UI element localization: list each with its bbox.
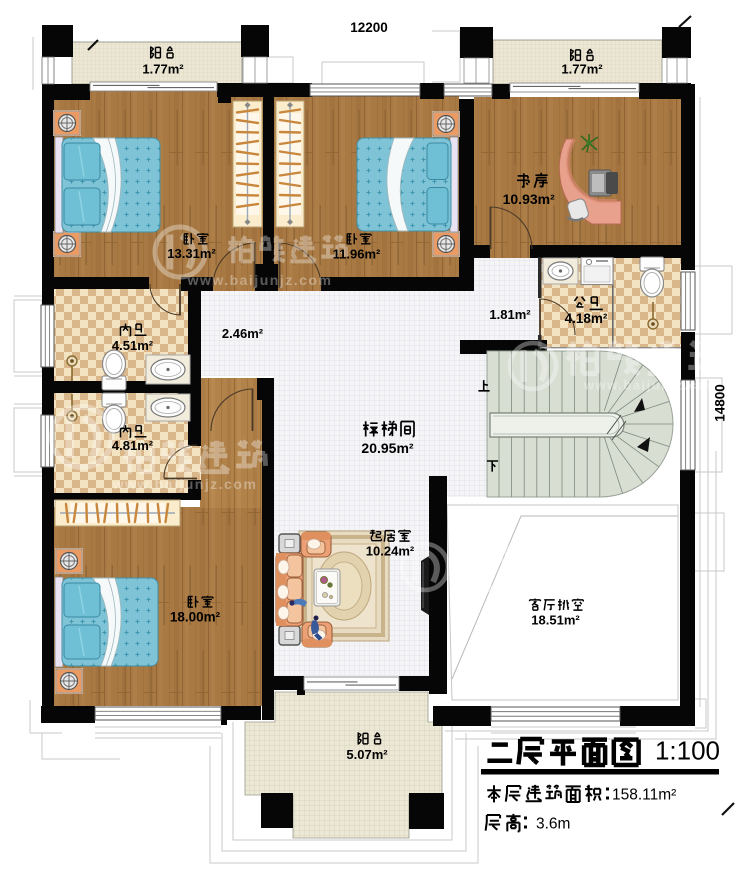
svg-text:13.31m²: 13.31m² xyxy=(167,246,216,261)
svg-text:4.18m²: 4.18m² xyxy=(565,311,608,326)
svg-text:5.07m²: 5.07m² xyxy=(346,747,388,762)
svg-text:1.81m²: 1.81m² xyxy=(489,307,531,322)
svg-text:2.46m²: 2.46m² xyxy=(222,326,264,341)
svg-text:1.77m²: 1.77m² xyxy=(142,62,184,77)
svg-text:14800: 14800 xyxy=(713,384,728,422)
svg-text:1.77m²: 1.77m² xyxy=(561,62,603,77)
svg-text:4.81m²: 4.81m² xyxy=(112,438,154,453)
svg-text:10.93m²: 10.93m² xyxy=(503,191,555,207)
svg-text:12200: 12200 xyxy=(350,20,388,35)
svg-text:www.baijunjz.com: www.baijunjz.com xyxy=(187,272,333,288)
svg-text:3.6m: 3.6m xyxy=(536,815,570,832)
svg-text:www.baijunjz.com: www.baijunjz.com xyxy=(112,476,258,492)
svg-text:www.baijunjz.com: www.baijunjz.com xyxy=(583,378,720,393)
svg-text:4.51m²: 4.51m² xyxy=(112,338,154,353)
svg-text:18.00m²: 18.00m² xyxy=(170,610,221,625)
svg-text:158.11m²: 158.11m² xyxy=(612,786,676,803)
svg-text:10.24m²: 10.24m² xyxy=(366,544,415,559)
svg-text:18.51m²: 18.51m² xyxy=(531,613,580,628)
svg-text:www.baijunjz.com: www.baijunjz.com xyxy=(462,581,599,596)
svg-text:1:100: 1:100 xyxy=(655,736,720,766)
svg-text:20.95m²: 20.95m² xyxy=(361,440,413,456)
svg-text:11.96m²: 11.96m² xyxy=(333,247,381,262)
